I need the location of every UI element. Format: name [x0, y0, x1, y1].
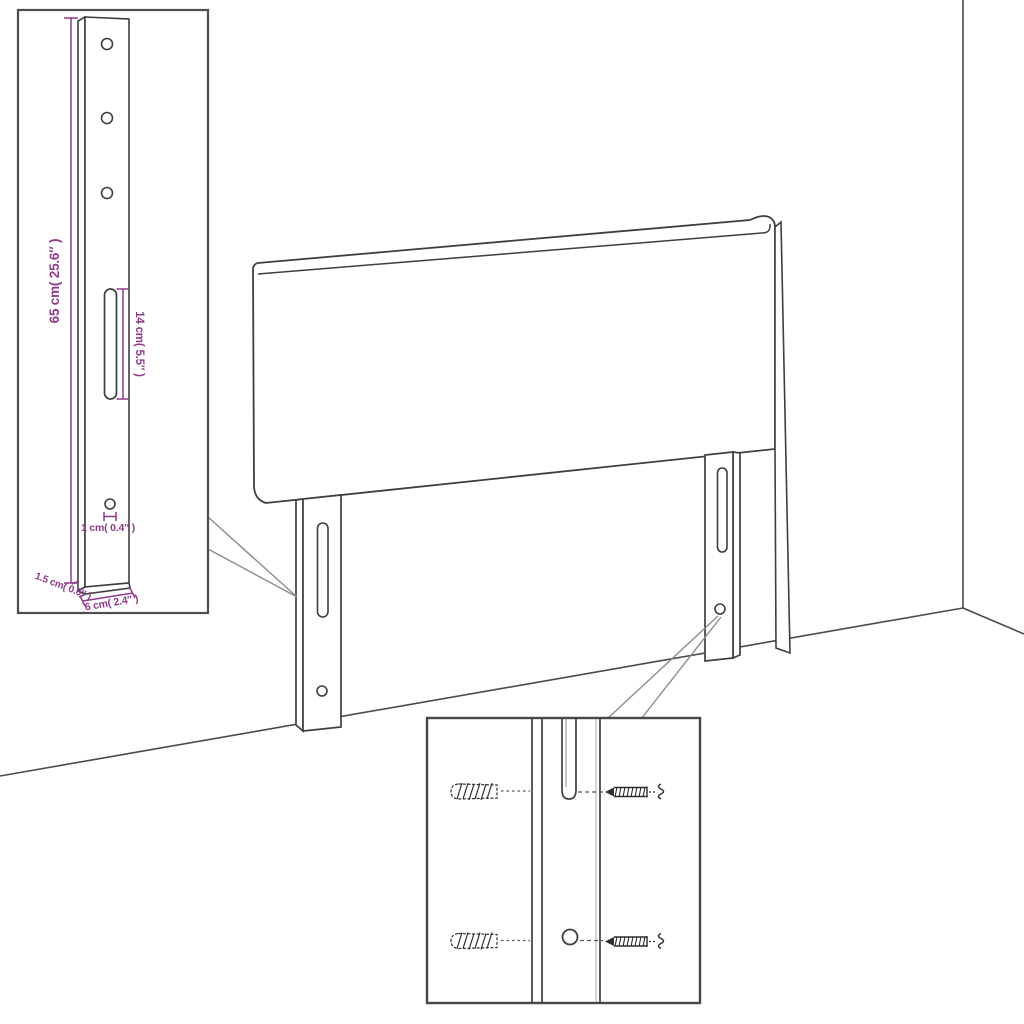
panel-back-face: [253, 216, 775, 503]
left-leg-side-face: [296, 499, 303, 731]
callout-lines: [208, 517, 721, 719]
left-leg-hole: [317, 686, 327, 696]
inset-leg-hole-middle: [102, 113, 113, 124]
right-leg-side-face: [733, 452, 740, 658]
inset-leg-hole-lower: [102, 188, 113, 199]
left-leg: [296, 495, 341, 731]
right-leg-slot: [718, 468, 728, 552]
inset-leg-detail: 65 cm( 25.6″ ) 14 cm( 5.5″ ) 1 cm( 0.4″ …: [18, 10, 208, 613]
inset-leg-small-hole: [105, 499, 115, 509]
callout-line-inset-to-left-leg-1: [208, 517, 297, 597]
inset-mounting-detail-box: [427, 718, 700, 1003]
panel-side-edge: [775, 222, 790, 653]
right-leg-hole: [715, 604, 725, 614]
dimension-hole-diameter: 1 cm( 0.4″ ): [81, 522, 135, 534]
inset-leg-drawing: [78, 17, 130, 594]
inset-mounting-detail: [427, 718, 700, 1003]
inset-leg-side-face: [78, 17, 85, 591]
product-diagram: 65 cm( 25.6″ ) 14 cm( 5.5″ ) 1 cm( 0.4″ …: [0, 0, 1024, 1024]
floor-line-right: [963, 608, 1024, 634]
inset-leg-slot: [105, 289, 117, 399]
left-leg-slot: [318, 523, 329, 617]
inset-leg-hole-top: [102, 39, 113, 50]
dimension-slot-length: 14 cm( 5.5″ ): [133, 311, 145, 377]
dimension-leg-height: 65 cm( 25.6″ ): [47, 239, 62, 324]
diagram-drawing: 65 cm( 25.6″ ) 14 cm( 5.5″ ) 1 cm( 0.4″ …: [0, 0, 1024, 1024]
callout-line-hole-to-inset-2: [641, 617, 721, 719]
